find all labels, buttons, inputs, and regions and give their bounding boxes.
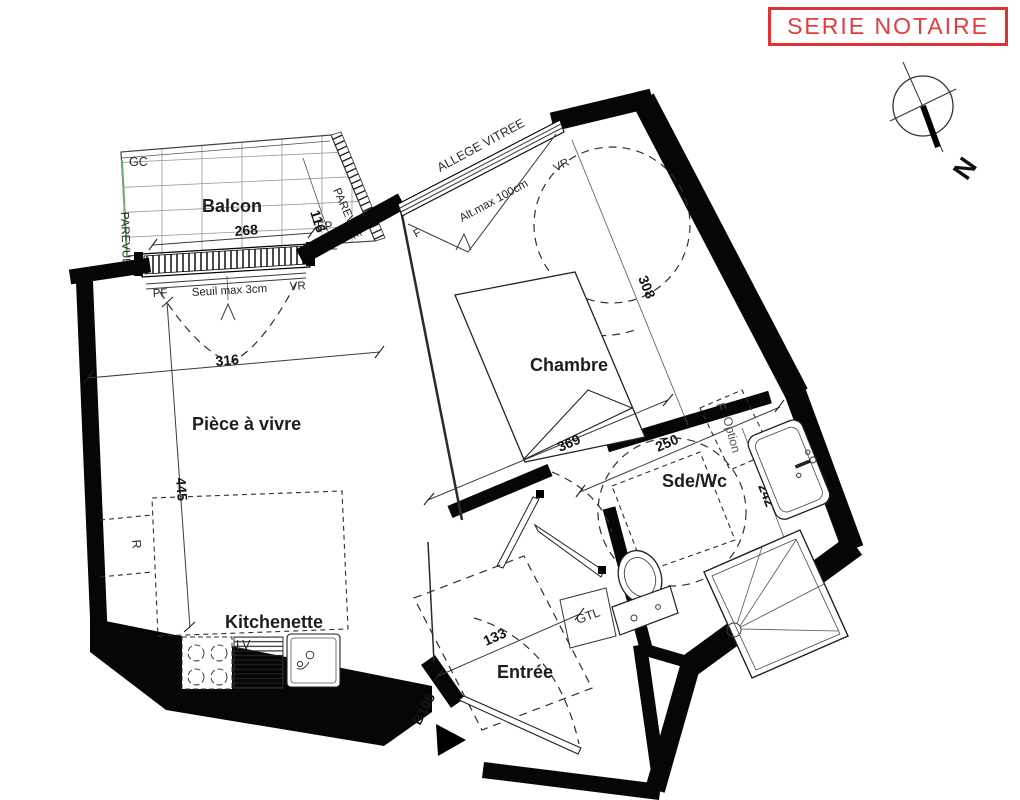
room-label-kitchenette: Kitchenette [225,612,323,632]
vr-balcony-label: VR [290,280,307,293]
entry-dashed-outline [414,556,592,730]
entry: Entrée 133 B105 [409,556,592,756]
balcony: GC Balcon 268 116 PAREVUE PAREVUE EP [110,128,390,362]
kitchen-sink [287,634,340,687]
room-label-chambre: Chambre [530,355,608,375]
compass-needle [923,106,938,147]
entrance-door [459,618,581,754]
dim-living-depth: 445 [173,477,191,502]
entrance-arrow-icon [436,724,466,756]
cooktop [182,637,232,689]
window-f-label: F [412,227,424,241]
room-label-balcon: Balcon [202,196,262,216]
seuil-note: Seuil max 3cm [192,283,268,299]
compass: N [890,62,982,185]
lv-label: LV [236,638,251,652]
kitchenette: Kitchenette LV [182,612,340,689]
dim-living-width: 316 [215,351,240,369]
room-label-piece-a-vivre: Pièce à vivre [192,414,301,434]
balcony-railing [134,242,315,277]
dim-balcony-width: 268 [234,221,259,239]
option-label: Option [720,415,743,454]
living-room: Pièce à vivre 316 445 R [84,297,384,636]
compass-north-label: N [947,152,983,185]
dim-bedroom-length: 308 [635,273,659,301]
parevue-left-label: PAREVUE [118,212,132,267]
dim-entry-width: 133 [481,625,509,649]
floor-plan-svg: GC Balcon 268 116 PAREVUE PAREVUE EP [0,0,1020,800]
r-note: R [129,539,144,549]
gc-label: GC [129,155,148,169]
floor-plan-page: SERIE NOTAIRE [0,0,1020,800]
pf-label: PF [153,287,168,300]
bedroom: ALLEGE VITREE F Alt.max 100cm VR Chambre… [398,116,690,505]
room-label-sde-wc: Sde/Wc [662,471,727,491]
